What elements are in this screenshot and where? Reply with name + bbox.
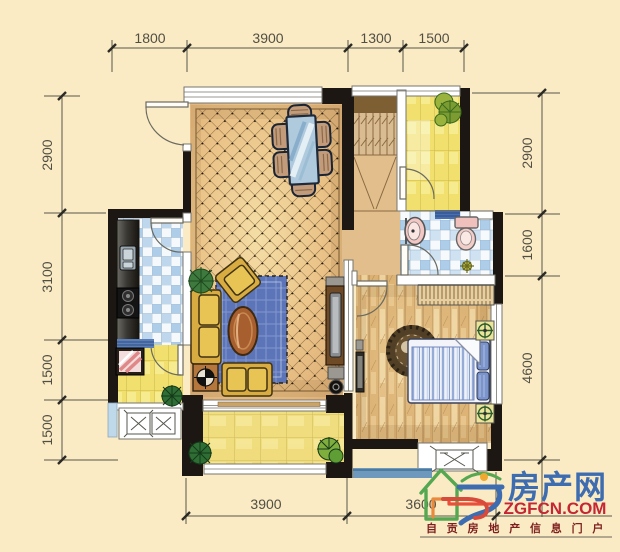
svg-text:2900: 2900 (519, 137, 535, 168)
svg-text:1300: 1300 (360, 30, 391, 46)
svg-text:3100: 3100 (39, 261, 55, 292)
svg-text:自贡房地产信息门户: 自贡房地产信息门户 (426, 521, 613, 535)
svg-text:1500: 1500 (39, 414, 55, 445)
svg-text:1800: 1800 (134, 30, 165, 46)
svg-text:2900: 2900 (39, 139, 55, 170)
svg-text:ZGFCN.COM: ZGFCN.COM (504, 499, 607, 518)
svg-text:1500: 1500 (418, 30, 449, 46)
svg-text:3900: 3900 (250, 496, 281, 512)
svg-text:1500: 1500 (39, 354, 55, 385)
svg-text:4600: 4600 (519, 352, 535, 383)
svg-text:1600: 1600 (519, 229, 535, 260)
svg-text:3900: 3900 (252, 30, 283, 46)
